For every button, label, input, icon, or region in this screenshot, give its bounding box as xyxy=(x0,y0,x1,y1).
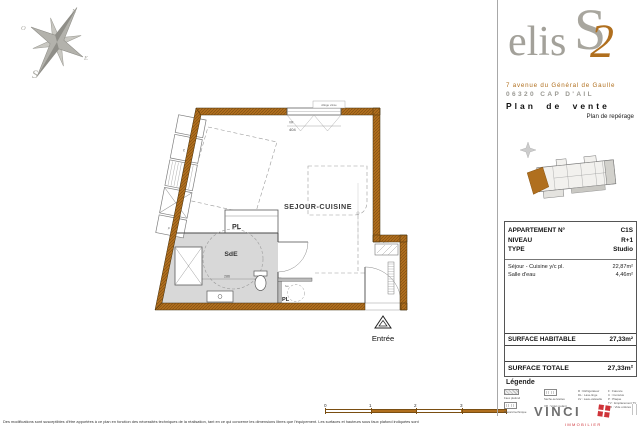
row-value: Studio xyxy=(613,245,633,255)
room-label-sejour-cuisine: SEJOUR-CUISINE xyxy=(284,202,352,211)
key-plan xyxy=(514,136,626,214)
info-panel: S 2 elis 7 avenue du Général de Gaulle 0… xyxy=(498,0,640,429)
document-subtitle: Plan de repérage xyxy=(506,113,634,120)
closet-pl-label: PL xyxy=(232,222,242,231)
technical-duct: gaine xyxy=(375,240,398,295)
sde-door xyxy=(278,242,308,272)
kitchen-units: c p xyxy=(156,115,206,238)
legend-title: Légende xyxy=(506,379,535,386)
table-row: Salle d'eau 4,46m² xyxy=(505,271,636,280)
window-allege-label: Allège vitrée xyxy=(321,103,337,107)
floor-plan: c p PL 286 SdE xyxy=(135,95,445,350)
entrance-marker: Entrée xyxy=(372,316,394,343)
seche-serviettes-icon xyxy=(544,389,557,396)
vinci-mark-icon xyxy=(596,403,612,419)
legend-item-label: LV : Lave-vaisselle xyxy=(578,397,602,401)
address-line-2: 06320 CAP D'AIL xyxy=(506,91,636,98)
legend-col-1: Faux plafond Placard technique xyxy=(504,389,526,414)
key-plan-star xyxy=(520,142,536,158)
vinci-logo: VINCI IMMOBILIER xyxy=(534,403,634,427)
apartment-info-table: APPARTEMENT N° C1S NIVEAU R+1 TYPE Studi… xyxy=(504,221,637,377)
compass-star xyxy=(12,0,102,85)
laundry-pl-label: PL xyxy=(282,297,290,303)
row-label: Salle d'eau xyxy=(508,271,536,280)
compass-e-label: E xyxy=(83,55,88,62)
key-plan-building xyxy=(526,154,616,200)
document-title: Plan de vente xyxy=(506,101,636,111)
faux-plafond-swatch xyxy=(504,389,519,395)
entrance-label: Entrée xyxy=(372,334,394,343)
toilet xyxy=(254,271,267,291)
laundry-closet: lve PL xyxy=(278,278,312,303)
row-label: APPARTEMENT N° xyxy=(508,226,565,236)
table-row: Séjour - Cuisine y/c pl. 22,87m² xyxy=(505,263,636,272)
legend-col-3: R : Réfrigérateur DL : Lave-linge LV : L… xyxy=(578,389,602,401)
row-value: R+1 xyxy=(621,236,633,246)
row-label: NIVEAU xyxy=(508,236,532,246)
window: Allège vitrée VR 404 xyxy=(287,101,345,132)
row-value: 27,33m² xyxy=(610,336,633,343)
vinci-sub-label: IMMOBILIER xyxy=(565,422,634,427)
compass-n-label: N xyxy=(71,8,77,15)
row-label: SURFACE HABITABLE xyxy=(508,336,576,343)
plan-de-vente-sheet: N O E S xyxy=(0,0,640,429)
plan-reference-mark xyxy=(636,404,637,415)
legend-item-label: Faux plafond xyxy=(504,396,526,400)
row-value: 27,33m² xyxy=(608,365,633,376)
dimension-line-vertical xyxy=(357,183,359,245)
shower-tray xyxy=(175,247,202,285)
closet-pl: PL xyxy=(225,210,278,233)
placard-technique-icon xyxy=(504,402,517,409)
vinci-name: VINCI xyxy=(534,404,581,419)
address-line-1: 7 avenue du Général de Gaulle xyxy=(506,82,636,89)
window-dim-label: 404 xyxy=(289,127,296,132)
scale-bar: 0 1 2 3 4 xyxy=(325,403,508,417)
plan-reference-mark xyxy=(632,404,633,415)
logo-elis: elis xyxy=(508,18,566,66)
window-vr-label: VR xyxy=(289,121,294,125)
compass-rose: N O E S xyxy=(12,0,102,85)
table-row: NIVEAU R+1 xyxy=(508,236,633,246)
table-separator xyxy=(505,259,636,260)
logo-two: 2 xyxy=(590,14,614,69)
legend-item-label: Sèche-serviettes xyxy=(544,397,567,401)
compass-s-label: S xyxy=(32,67,38,81)
surface-habitable-row: SURFACE HABITABLE 27,33m² xyxy=(505,333,636,346)
surface-totale-row: SURFACE TOTALE 27,33m² xyxy=(505,361,636,376)
entrance-door xyxy=(365,267,401,310)
row-label: TYPE xyxy=(508,245,525,255)
brand-logo: S 2 elis xyxy=(498,4,638,78)
laundry-lve-label: lve xyxy=(285,284,289,288)
washbasin xyxy=(207,291,233,302)
table-row: APPARTEMENT N° C1S xyxy=(508,226,633,236)
compass-o-label: O xyxy=(21,25,26,32)
sde-dimension-label: 286 xyxy=(224,275,230,279)
row-value: C1S xyxy=(621,226,633,236)
row-value: 4,46m² xyxy=(616,271,633,280)
row-value: 22,87m² xyxy=(612,263,633,272)
sde-label: SdE xyxy=(224,251,238,258)
row-label: SURFACE TOTALE xyxy=(508,365,569,376)
row-label: Séjour - Cuisine y/c pl. xyxy=(508,263,564,272)
table-row: TYPE Studio xyxy=(508,245,633,255)
legend-item-label: Placard technique xyxy=(504,410,526,414)
